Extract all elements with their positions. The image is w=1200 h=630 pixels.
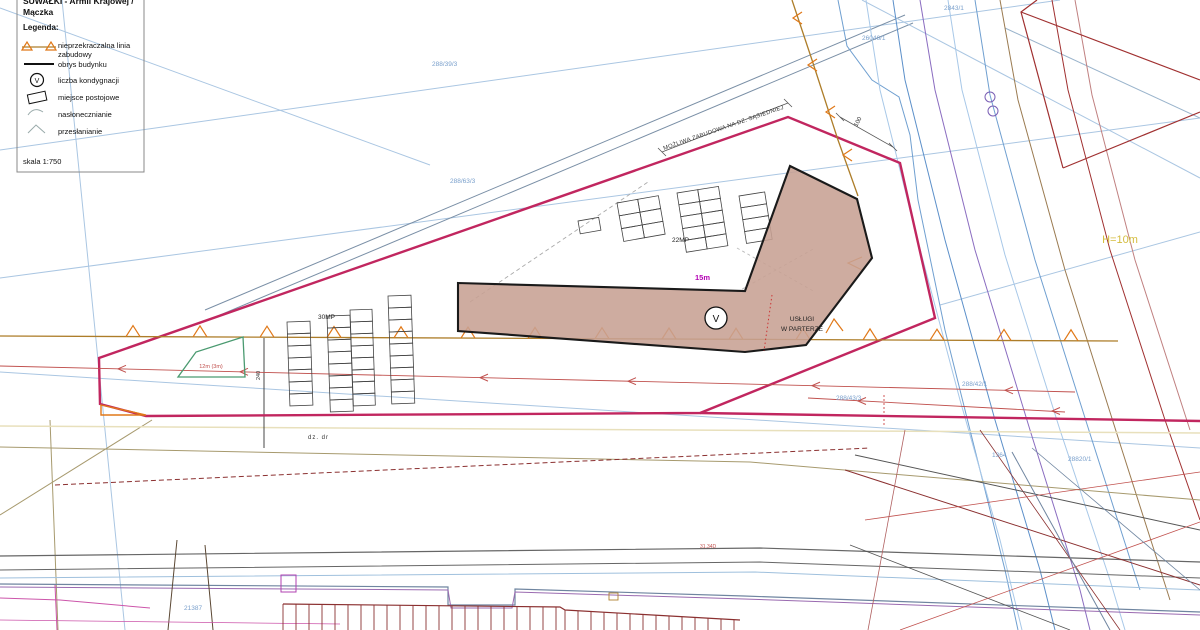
cadastral-line (0, 447, 1200, 500)
building-use-line1: USŁUGI (790, 316, 814, 323)
parking-stall (288, 357, 311, 370)
parking-stall (288, 345, 311, 358)
garage-row-edge (283, 604, 740, 620)
parking-stall (619, 212, 642, 228)
parking-count-left: 30MP (318, 314, 335, 321)
parking-stall (700, 198, 723, 213)
cadastral-line (1032, 448, 1200, 590)
setback-triangle-icon (22, 42, 32, 50)
road-utility-line (1052, 0, 1200, 520)
spot-elevation-label: 31.34D (700, 544, 717, 550)
parking-stall (701, 210, 724, 225)
parcel-number-label: 1364 (992, 452, 1007, 459)
dim-240-label: 240 (256, 371, 262, 380)
adjacent-plot-annotation: MOŻLIWA ZABUDOWA NA DZ. SĄSIEDNIEJ (662, 104, 784, 152)
parking-block (617, 196, 665, 242)
setback-triangle-icon (126, 326, 140, 337)
road-utility-line (1075, 0, 1190, 430)
parcel-number-label: 28820/1 (1068, 456, 1092, 463)
parking-stall (388, 307, 411, 320)
parking-stall (350, 309, 372, 322)
legend-item-label: przesłanianie (58, 127, 102, 136)
building-outline (458, 166, 872, 352)
setback-triangle-icon (260, 326, 274, 337)
legend-panel: SUWAŁKI - Armii Krajowej / Mączka Legend… (17, 0, 144, 172)
road-corridor-utility-lines (838, 0, 1200, 630)
parking-stall (391, 379, 414, 392)
setback-triangle-icon (826, 319, 843, 333)
cadastral-line (0, 572, 1200, 590)
road-utility-line (975, 0, 1140, 590)
parking-stall (622, 225, 645, 241)
setback-line (792, 0, 858, 196)
parking-stall (287, 321, 310, 334)
plan-title-line1: SUWAŁKI - Armii Krajowej / (23, 0, 134, 6)
parking-stall (352, 357, 374, 370)
boundary-corner-triangle (101, 405, 146, 415)
plan-title-line2: Mączka (23, 7, 54, 17)
parking-block (287, 321, 313, 406)
sun-access-line (0, 366, 1075, 392)
parking-stall (328, 339, 351, 352)
cadastral-line (1012, 452, 1110, 630)
cadastral-line (0, 562, 1200, 578)
parking-stall (578, 217, 601, 233)
parking-stall (389, 319, 412, 332)
legend-item-label: miejsce postojowe (58, 93, 119, 102)
sunlight-icon (28, 110, 43, 115)
cadastral-line (980, 430, 1120, 630)
setback-triangle-icon (193, 326, 207, 337)
parking-block (350, 309, 375, 406)
parking-stall (330, 399, 353, 412)
building-use-line2: W PARTERZE (781, 326, 824, 333)
survey-line (0, 8, 430, 165)
sun-access-lines (0, 365, 1075, 414)
parcel-number-label: 288/42/1 (962, 381, 988, 388)
parking-stall (642, 221, 665, 237)
survey-line (1005, 28, 1200, 118)
parking-stall (617, 199, 640, 215)
parcel-number-label: 288/63/3 (450, 178, 476, 185)
setback-triangle-icon (863, 329, 877, 340)
legend-item-label: nieprzekraczalna linia (58, 41, 131, 50)
setback-triangle-icon (1064, 330, 1078, 341)
parking-stall (388, 295, 411, 308)
parking-stall (638, 196, 661, 212)
road-utility-line (1000, 0, 1170, 600)
cadastral-line (0, 426, 1200, 433)
fence-dashed-line (55, 448, 870, 485)
parking-stall (353, 381, 375, 394)
parking-block (327, 315, 353, 412)
parking-stall (390, 343, 413, 356)
storey-count-value: V (713, 314, 720, 325)
survey-line (0, 118, 1200, 278)
parking-stall (677, 190, 700, 205)
legend-storey-symbol: V (35, 78, 40, 85)
parking-stall (329, 375, 352, 388)
parking-stall (703, 222, 726, 237)
boundary-road-line (700, 413, 1200, 421)
road-utility-line (948, 0, 1125, 630)
cadastral-line (0, 598, 150, 608)
dim-100-label: 100 (853, 116, 863, 128)
parking-stall (391, 367, 414, 380)
parking-block (388, 295, 415, 404)
legend-scale: skala 1:750 (23, 157, 61, 166)
setback-triangle-icon (997, 329, 1011, 340)
setback-distance-label: 15m (695, 273, 710, 282)
cadastral-line (50, 420, 58, 630)
parking-stall (705, 234, 728, 249)
survey-line (940, 232, 1200, 305)
parking-stall (287, 333, 310, 346)
parking-stall (739, 192, 767, 208)
road-utility-line (920, 0, 1090, 630)
parking-stall (290, 393, 313, 406)
road-utility-line (893, 0, 1055, 630)
parking-count-upper: 22MP (672, 237, 689, 244)
parking-stall (679, 202, 702, 217)
legend-item-label: obrys budynku (58, 60, 107, 69)
dimension-tick (836, 113, 844, 121)
cadastral-line (205, 545, 213, 630)
site-plan: 12m (3m) 22MP 30MP V USŁUGI W PARTERZE 1… (0, 0, 1200, 630)
parcel-number-label: 288/39/3 (432, 61, 458, 68)
parking-stall (640, 209, 663, 225)
parcel-number-label: 21387 (184, 605, 202, 612)
survey-line (862, 0, 1200, 178)
legend-item-label: liczba kondygnacji (58, 76, 119, 85)
parking-stall (698, 186, 721, 201)
building-footprint: V USŁUGI W PARTERZE (458, 166, 872, 352)
parking-stall (351, 333, 373, 346)
utility-box-symbol (609, 593, 618, 600)
legend-item-label: zabudowy (58, 50, 92, 59)
road-utility-line (1021, 12, 1200, 80)
dimension-tick (889, 143, 897, 151)
cadastral-line (0, 548, 1200, 562)
cadastral-line (855, 455, 1200, 530)
survey-line (0, 0, 1060, 150)
parking-block (578, 217, 601, 233)
parking-stall (350, 321, 372, 334)
survey-line (0, 372, 1200, 448)
shading-icon (28, 125, 45, 133)
parking-stall (328, 351, 351, 364)
legend-heading: Legenda: (23, 23, 59, 32)
parking-stall (351, 345, 373, 358)
cadastral-line (868, 430, 905, 630)
cadastral-line (850, 545, 1070, 630)
cadastral-line (0, 620, 340, 624)
setback-triangle-icon (394, 327, 408, 338)
road-utility-line (1063, 112, 1200, 168)
road-plot-label: dz. dr (308, 435, 329, 441)
parcel-number-label: 26046/1 (862, 35, 886, 42)
setback-triangle-icon (46, 42, 56, 50)
parcel-number-label: 2843/1 (944, 5, 964, 12)
max-height-label: H=10m (1102, 234, 1138, 246)
parking-stall (681, 213, 704, 228)
road-utility-line (838, 0, 1018, 630)
road-utility-line (866, 0, 1022, 630)
utility-manholes (985, 92, 998, 116)
parking-stall (741, 204, 769, 220)
parking-stall (352, 369, 374, 382)
green-area-dimension: 12m (3m) (199, 364, 223, 370)
parking-space-icon (27, 91, 46, 104)
cadastral-line (0, 420, 152, 515)
parcel-number-label: 288/43/3 (836, 395, 862, 402)
parking-stall (390, 355, 413, 368)
dimension-tick (784, 99, 792, 107)
bottom-cadastral-lines (0, 420, 1200, 630)
parking-stall (289, 369, 312, 382)
legend-item-label: nasłonecznianie (58, 110, 112, 119)
